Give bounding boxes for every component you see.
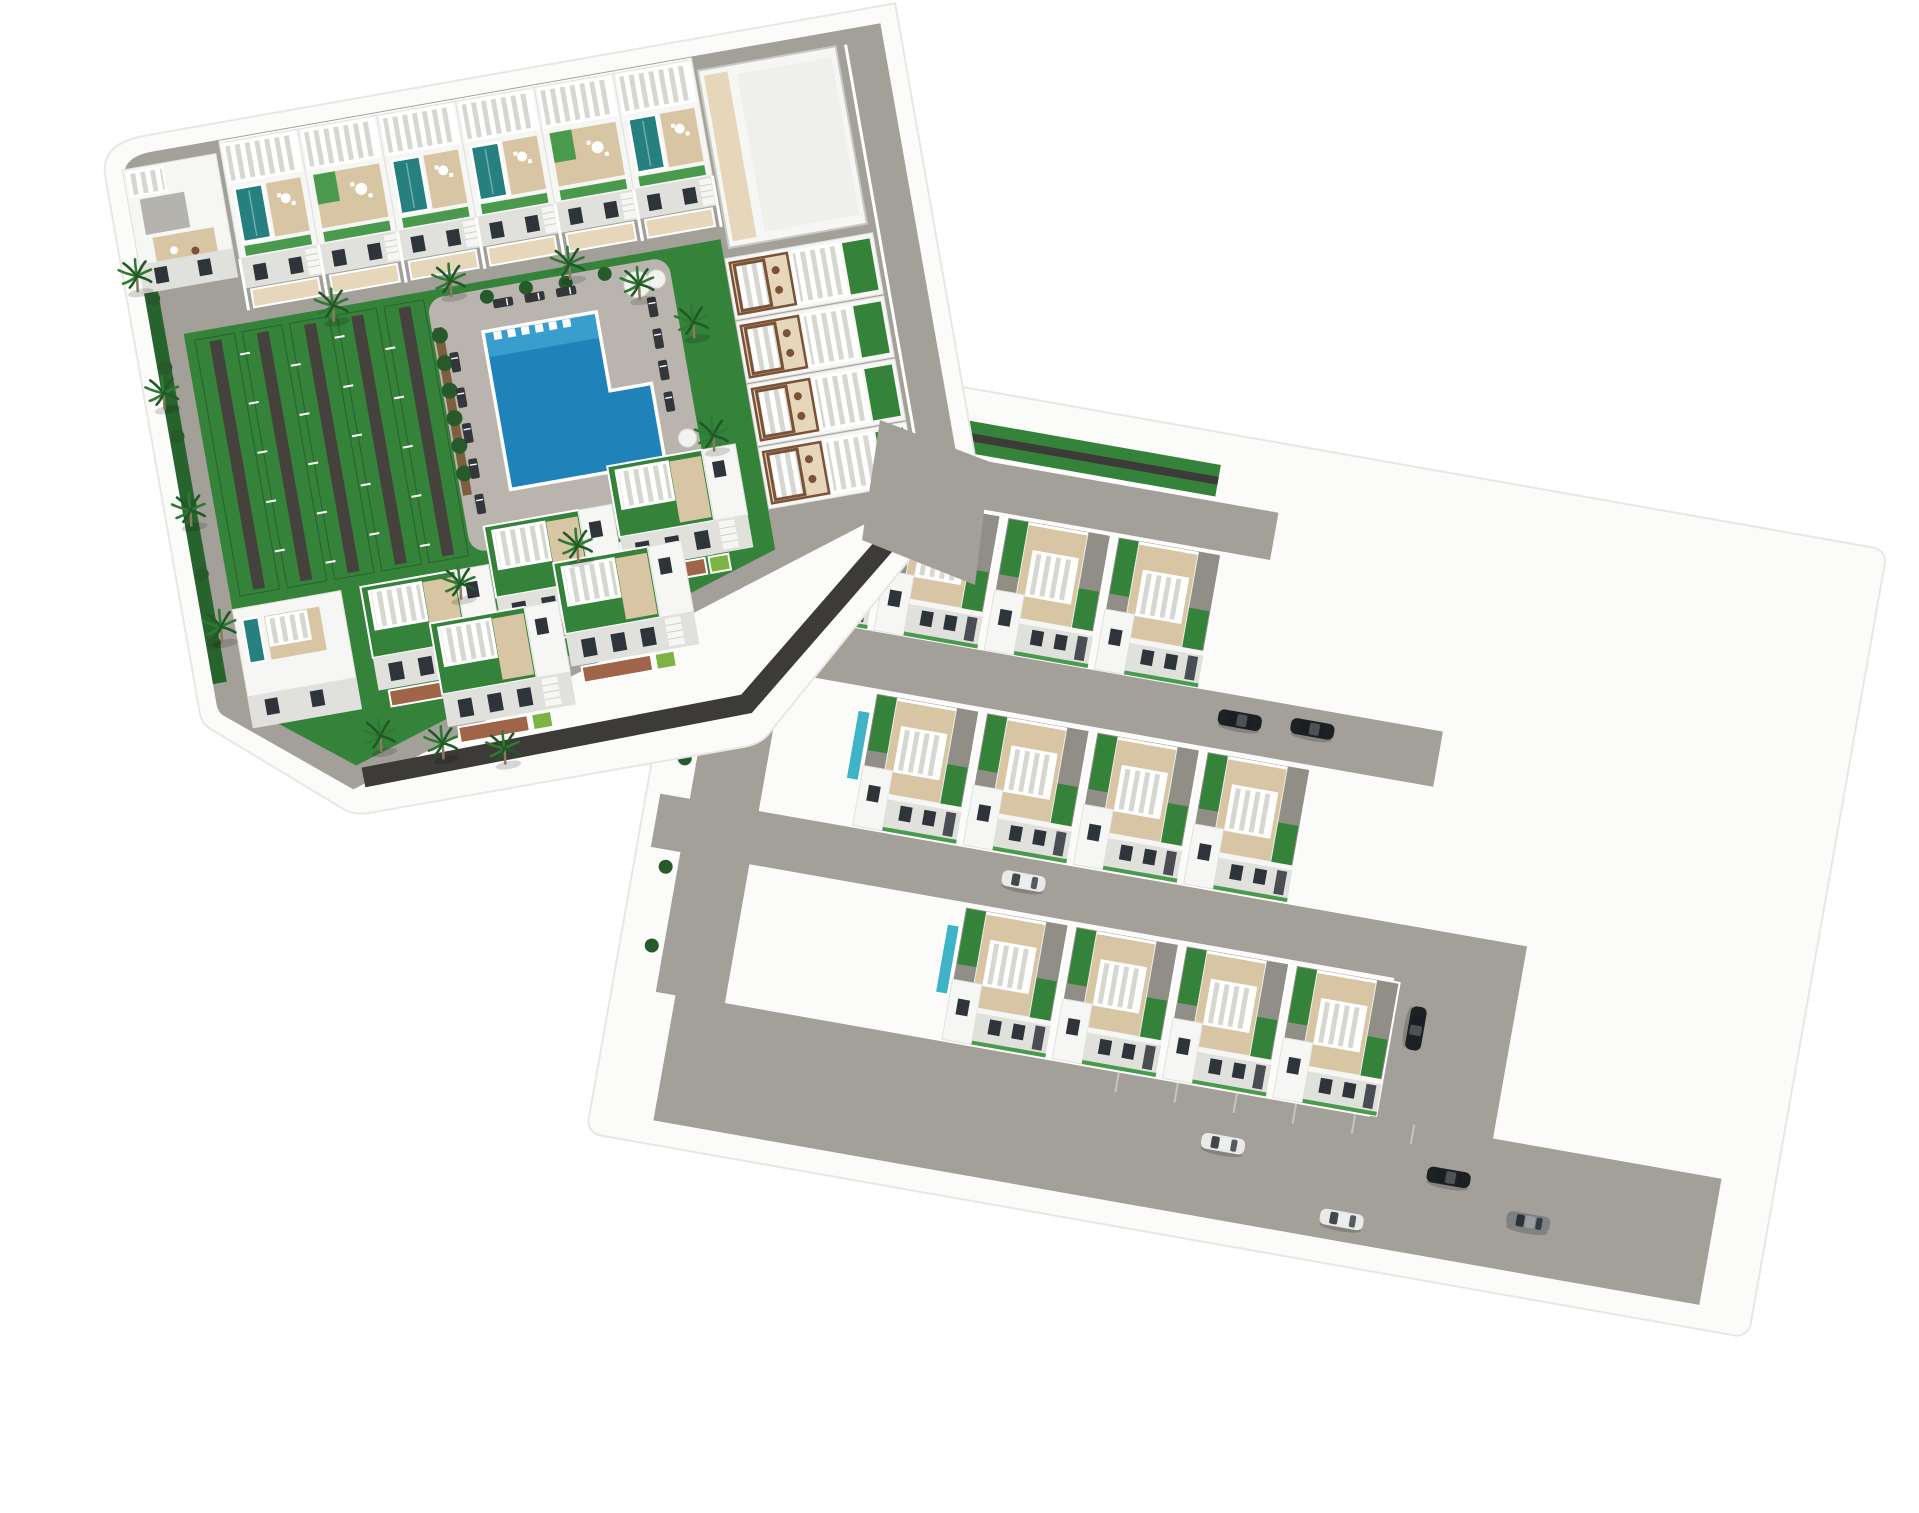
building-west-mid	[232, 591, 361, 728]
villa	[984, 517, 1111, 668]
villa	[963, 712, 1090, 863]
grass-parking-strips	[195, 300, 469, 596]
villa	[1162, 945, 1289, 1096]
villa	[1273, 965, 1400, 1116]
villa	[1052, 926, 1179, 1077]
villa	[1073, 732, 1200, 883]
villa	[1184, 751, 1311, 902]
villa	[1094, 536, 1221, 687]
corner-building-northeast	[698, 46, 867, 248]
site-plan-render	[0, 0, 1919, 1513]
villa	[853, 693, 980, 844]
villa	[942, 906, 1069, 1057]
render-canvas: Aerial 3D rendering of a white Mediterra…	[0, 0, 1919, 1513]
